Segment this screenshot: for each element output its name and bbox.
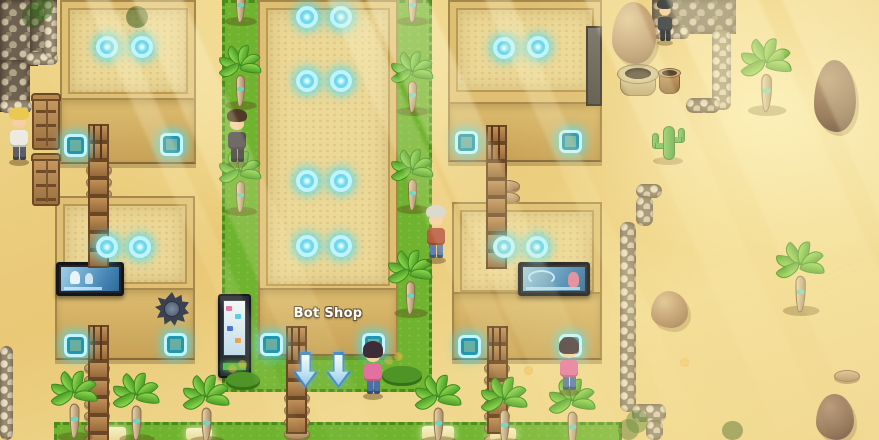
npc-brown-haired-visitor[interactable] — [224, 106, 250, 168]
npc-blond-villager[interactable] — [6, 104, 32, 166]
npc-figure-on-cliff[interactable] — [655, 0, 676, 46]
game-scene: Bot Shop — [0, 0, 879, 440]
npc-gray-haired-elder[interactable] — [423, 202, 449, 264]
npc-woman-in-pink-2[interactable] — [556, 334, 582, 396]
npc-woman-in-pink[interactable] — [360, 338, 386, 400]
npc-layer — [0, 0, 879, 440]
